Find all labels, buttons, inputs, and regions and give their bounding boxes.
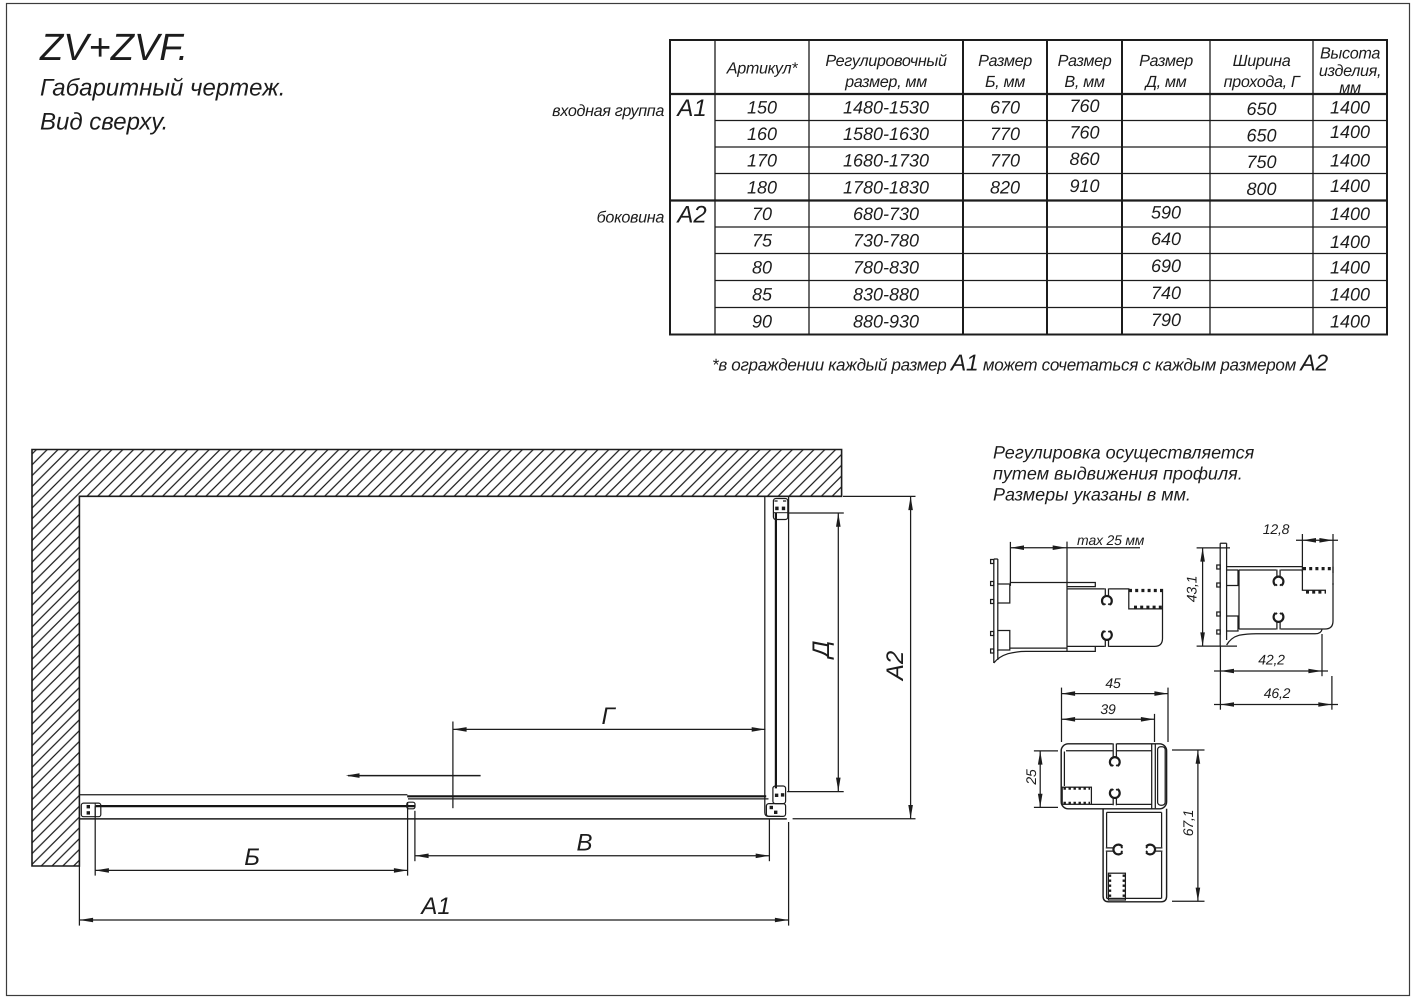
svg-text:Артикул*: Артикул* — [726, 60, 799, 78]
svg-text:Д: Д — [808, 640, 835, 660]
svg-text:max 25 мм: max 25 мм — [1077, 532, 1145, 548]
svg-text:1400: 1400 — [1330, 176, 1370, 196]
svg-text:путем выдвижения профиля.: путем выдвижения профиля. — [993, 464, 1243, 484]
svg-text:12,8: 12,8 — [1263, 521, 1290, 537]
svg-text:1480-1530: 1480-1530 — [843, 98, 929, 118]
svg-text:изделия,: изделия, — [1319, 62, 1381, 80]
svg-text:770: 770 — [990, 124, 1020, 144]
svg-text:730-780: 730-780 — [853, 231, 919, 251]
svg-text:690: 690 — [1151, 256, 1181, 276]
svg-text:1400: 1400 — [1330, 204, 1370, 224]
svg-text:Регулировка осуществляется: Регулировка осуществляется — [993, 443, 1255, 463]
svg-text:1400: 1400 — [1330, 151, 1370, 171]
svg-text:45: 45 — [1105, 675, 1121, 691]
svg-text:39: 39 — [1100, 701, 1116, 717]
svg-text:Размер: Размер — [978, 52, 1032, 70]
svg-text:1400: 1400 — [1330, 285, 1370, 305]
svg-text:1400: 1400 — [1330, 122, 1370, 142]
svg-text:800: 800 — [1246, 179, 1276, 199]
svg-text:910: 910 — [1069, 176, 1099, 196]
svg-text:ZV+ZVF.: ZV+ZVF. — [39, 27, 188, 69]
svg-text:75: 75 — [752, 231, 773, 251]
svg-text:880-930: 880-930 — [853, 312, 919, 332]
svg-text:В, мм: В, мм — [1064, 73, 1104, 91]
svg-text:90: 90 — [752, 312, 772, 332]
svg-text:Размеры указаны в мм.: Размеры указаны в мм. — [993, 485, 1191, 505]
svg-text:43,1: 43,1 — [1184, 576, 1200, 602]
svg-text:67,1: 67,1 — [1180, 810, 1196, 836]
svg-text:Д, мм: Д, мм — [1144, 73, 1187, 91]
svg-text:150: 150 — [747, 98, 777, 118]
svg-text:670: 670 — [990, 98, 1020, 118]
svg-text:1400: 1400 — [1330, 98, 1370, 118]
svg-text:860: 860 — [1069, 149, 1099, 169]
svg-text:Б: Б — [244, 844, 260, 871]
svg-text:170: 170 — [747, 151, 777, 171]
svg-text:1680-1730: 1680-1730 — [843, 151, 929, 171]
svg-text:760: 760 — [1069, 96, 1099, 116]
svg-text:650: 650 — [1246, 126, 1276, 146]
svg-text:25: 25 — [1023, 769, 1039, 786]
svg-text:640: 640 — [1151, 229, 1181, 249]
svg-text:770: 770 — [990, 151, 1020, 171]
svg-text:А2: А2 — [675, 202, 706, 229]
svg-text:1400: 1400 — [1330, 258, 1370, 278]
svg-text:Размер: Размер — [1139, 52, 1193, 70]
svg-text:790: 790 — [1151, 310, 1181, 330]
svg-text:760: 760 — [1069, 123, 1099, 143]
svg-text:1400: 1400 — [1330, 312, 1370, 332]
svg-text:Вид сверху.: Вид сверху. — [40, 109, 168, 136]
svg-text:А1: А1 — [675, 95, 706, 122]
svg-text:входная группа: входная группа — [552, 102, 664, 120]
svg-text:В: В — [576, 829, 592, 856]
svg-text:85: 85 — [752, 285, 773, 305]
svg-text:70: 70 — [752, 204, 772, 224]
svg-text:прохода, Г: прохода, Г — [1224, 73, 1301, 91]
svg-text:820: 820 — [990, 178, 1020, 198]
svg-text:80: 80 — [752, 258, 772, 278]
svg-text:Размер: Размер — [1058, 52, 1112, 70]
svg-text:Регулировочный: Регулировочный — [825, 52, 947, 70]
svg-text:780-830: 780-830 — [853, 258, 919, 278]
svg-text:650: 650 — [1246, 99, 1276, 119]
svg-text:А2: А2 — [882, 651, 909, 682]
svg-text:830-880: 830-880 — [853, 285, 919, 305]
svg-text:Высота: Высота — [1320, 45, 1380, 63]
svg-text:180: 180 — [747, 178, 777, 198]
svg-text:750: 750 — [1246, 152, 1276, 172]
svg-text:680-730: 680-730 — [853, 204, 919, 224]
svg-text:боковина: боковина — [597, 209, 665, 227]
svg-text:размер, мм: размер, мм — [844, 73, 927, 91]
svg-text:42,2: 42,2 — [1258, 652, 1285, 668]
svg-text:46,2: 46,2 — [1264, 685, 1291, 701]
svg-text:1400: 1400 — [1330, 232, 1370, 252]
svg-text:160: 160 — [747, 124, 777, 144]
svg-text:мм: мм — [1339, 79, 1361, 97]
svg-text:Ширина: Ширина — [1233, 52, 1291, 70]
svg-text:Габаритный чертеж.: Габаритный чертеж. — [40, 75, 285, 102]
svg-text:А1: А1 — [419, 893, 450, 920]
svg-text:Г: Г — [601, 703, 616, 730]
svg-text:Б, мм: Б, мм — [985, 73, 1025, 91]
svg-text:590: 590 — [1151, 203, 1181, 223]
svg-text:740: 740 — [1151, 283, 1181, 303]
svg-text:1580-1630: 1580-1630 — [843, 124, 929, 144]
svg-text:1780-1830: 1780-1830 — [843, 178, 929, 198]
